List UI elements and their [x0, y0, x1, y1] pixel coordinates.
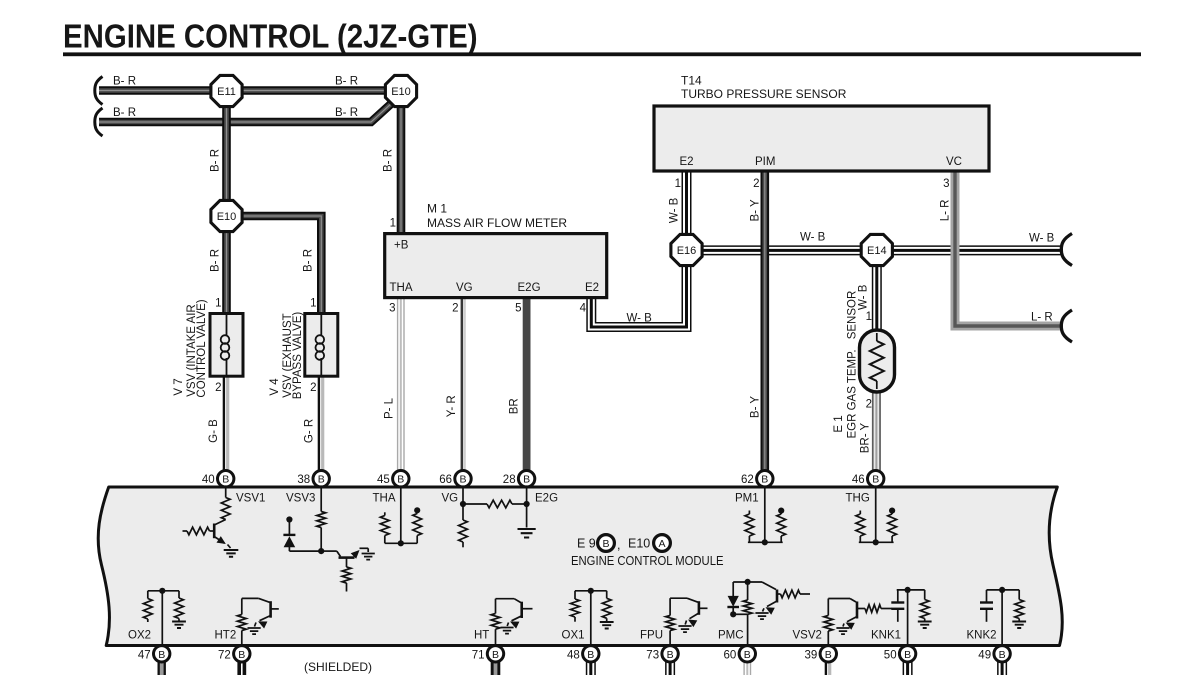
svg-text:B- R: B- R — [113, 107, 136, 119]
svg-text:L- R: L- R — [1031, 312, 1053, 324]
svg-text:MASS AIR FLOW METER: MASS AIR FLOW METER — [427, 216, 567, 230]
svg-text:PM1: PM1 — [735, 493, 759, 505]
svg-text:VSV2: VSV2 — [793, 630, 822, 642]
svg-text:60: 60 — [724, 650, 737, 662]
svg-text:62: 62 — [741, 474, 754, 486]
svg-text:P- L: P- L — [383, 397, 395, 419]
svg-text:B: B — [904, 649, 911, 661]
svg-text:E2: E2 — [585, 282, 599, 294]
svg-text:B: B — [238, 649, 245, 661]
svg-text:Y- R: Y- R — [446, 395, 458, 417]
svg-text:46: 46 — [852, 474, 865, 486]
svg-text:B: B — [825, 649, 832, 661]
svg-text:1: 1 — [310, 298, 316, 310]
svg-text:VG: VG — [456, 282, 473, 294]
svg-text:T14: T14 — [681, 74, 702, 88]
svg-text:4: 4 — [580, 303, 587, 315]
svg-text:B- R: B- R — [210, 249, 222, 272]
svg-text:48: 48 — [567, 650, 580, 662]
svg-text:THA: THA — [373, 493, 396, 505]
svg-text:KNK2: KNK2 — [967, 630, 997, 642]
svg-text:2: 2 — [215, 382, 221, 394]
svg-text:,: , — [617, 538, 620, 552]
svg-text:OX2: OX2 — [128, 630, 151, 642]
svg-text:72: 72 — [218, 650, 231, 662]
svg-text:A: A — [658, 538, 665, 550]
svg-text:W- B: W- B — [800, 232, 826, 244]
svg-text:OX1: OX1 — [562, 630, 585, 642]
svg-text:ENGINE CONTROL (2JZ-GTE): ENGINE CONTROL (2JZ-GTE) — [63, 18, 478, 55]
svg-text:EGR GAS TEMP.: EGR GAS TEMP. — [846, 349, 858, 438]
svg-text:W- B: W- B — [1029, 233, 1055, 245]
svg-text:47: 47 — [138, 650, 151, 662]
svg-text:VC: VC — [946, 156, 962, 168]
svg-text:W- B: W- B — [858, 284, 870, 310]
svg-text:73: 73 — [646, 650, 659, 662]
svg-text:2: 2 — [753, 178, 759, 190]
svg-text:SENSOR: SENSOR — [846, 291, 858, 340]
svg-text:BR: BR — [508, 398, 520, 414]
svg-text:E14: E14 — [867, 245, 887, 257]
svg-text:BR- Y: BR- Y — [860, 422, 872, 453]
svg-text:+B: +B — [394, 240, 409, 252]
svg-text:G- R: G- R — [304, 419, 316, 443]
svg-text:38: 38 — [297, 474, 310, 486]
svg-text:THA: THA — [390, 282, 413, 294]
svg-text:B: B — [397, 474, 404, 486]
svg-text:49: 49 — [978, 650, 991, 662]
svg-text:W- B: W- B — [669, 197, 681, 223]
svg-text:B: B — [744, 649, 751, 661]
svg-text:B: B — [587, 649, 594, 661]
svg-text:E10: E10 — [217, 211, 237, 223]
svg-text:1: 1 — [215, 298, 221, 310]
svg-text:1: 1 — [390, 218, 396, 230]
svg-text:B- R: B- R — [383, 149, 395, 172]
svg-text:45: 45 — [377, 474, 390, 486]
svg-text:E16: E16 — [677, 245, 697, 257]
svg-text:M 1: M 1 — [427, 202, 447, 216]
svg-text:B: B — [667, 649, 674, 661]
svg-text:VSV3: VSV3 — [286, 493, 315, 505]
svg-text:E2: E2 — [680, 156, 694, 168]
svg-text:B: B — [872, 474, 879, 486]
svg-text:G- B: G- B — [208, 419, 220, 443]
svg-text:71: 71 — [472, 650, 485, 662]
svg-text:TURBO PRESSURE SENSOR: TURBO PRESSURE SENSOR — [681, 87, 847, 101]
svg-text:E11: E11 — [217, 86, 236, 98]
svg-text:L- R: L- R — [939, 200, 951, 222]
svg-text:B: B — [602, 538, 609, 550]
svg-text:B- R: B- R — [335, 76, 358, 88]
svg-text:THG: THG — [846, 493, 870, 505]
svg-text:2: 2 — [866, 399, 872, 411]
svg-text:E 9: E 9 — [577, 537, 596, 551]
svg-text:KNK1: KNK1 — [871, 630, 901, 642]
svg-text:2: 2 — [310, 382, 316, 394]
svg-text:66: 66 — [439, 474, 452, 486]
svg-text:V 7: V 7 — [173, 378, 185, 395]
svg-text:ENGINE CONTROL MODULE: ENGINE CONTROL MODULE — [571, 554, 724, 568]
svg-text:E10: E10 — [391, 86, 411, 98]
svg-text:B- Y: B- Y — [749, 199, 761, 221]
svg-text:B: B — [523, 474, 530, 486]
svg-text:PIM: PIM — [755, 156, 775, 168]
svg-text:1: 1 — [866, 311, 872, 323]
svg-text:HT2: HT2 — [215, 630, 237, 642]
svg-text:E10: E10 — [628, 537, 650, 551]
svg-text:V 4: V 4 — [269, 378, 281, 396]
svg-text:E 1: E 1 — [833, 415, 845, 432]
svg-text:39: 39 — [805, 650, 818, 662]
svg-text:3: 3 — [389, 303, 395, 315]
svg-text:1: 1 — [675, 178, 681, 190]
svg-text:B: B — [999, 649, 1006, 661]
svg-text:CONTROL VALVE): CONTROL VALVE) — [196, 299, 208, 397]
svg-text:2: 2 — [452, 303, 458, 315]
svg-text:B- Y: B- Y — [749, 396, 761, 418]
svg-text:FPU: FPU — [640, 630, 663, 642]
svg-text:PMC: PMC — [718, 630, 744, 642]
svg-text:B- R: B- R — [113, 76, 136, 88]
svg-text:B: B — [158, 649, 165, 661]
svg-text:B: B — [492, 649, 499, 661]
svg-text:5: 5 — [515, 303, 521, 315]
svg-text:W- B: W- B — [627, 313, 653, 325]
svg-text:VG: VG — [442, 493, 459, 505]
svg-text:VSV1: VSV1 — [236, 493, 265, 505]
svg-text:50: 50 — [884, 650, 897, 662]
svg-text:BYPASS VALVE): BYPASS VALVE) — [292, 312, 304, 400]
svg-text:B- R: B- R — [210, 149, 222, 172]
svg-text:B: B — [459, 474, 466, 486]
svg-text:B: B — [761, 474, 768, 486]
svg-text:B: B — [318, 474, 325, 486]
svg-text:(SHIELDED): (SHIELDED) — [304, 660, 372, 674]
svg-text:40: 40 — [202, 474, 215, 486]
svg-text:B: B — [222, 474, 229, 486]
svg-text:28: 28 — [503, 474, 516, 486]
svg-text:3: 3 — [943, 178, 949, 190]
svg-text:E2G: E2G — [518, 282, 541, 294]
svg-text:E2G: E2G — [535, 493, 558, 505]
svg-text:B- R: B- R — [303, 249, 315, 272]
svg-text:HT: HT — [474, 630, 489, 642]
svg-text:B- R: B- R — [335, 107, 358, 119]
